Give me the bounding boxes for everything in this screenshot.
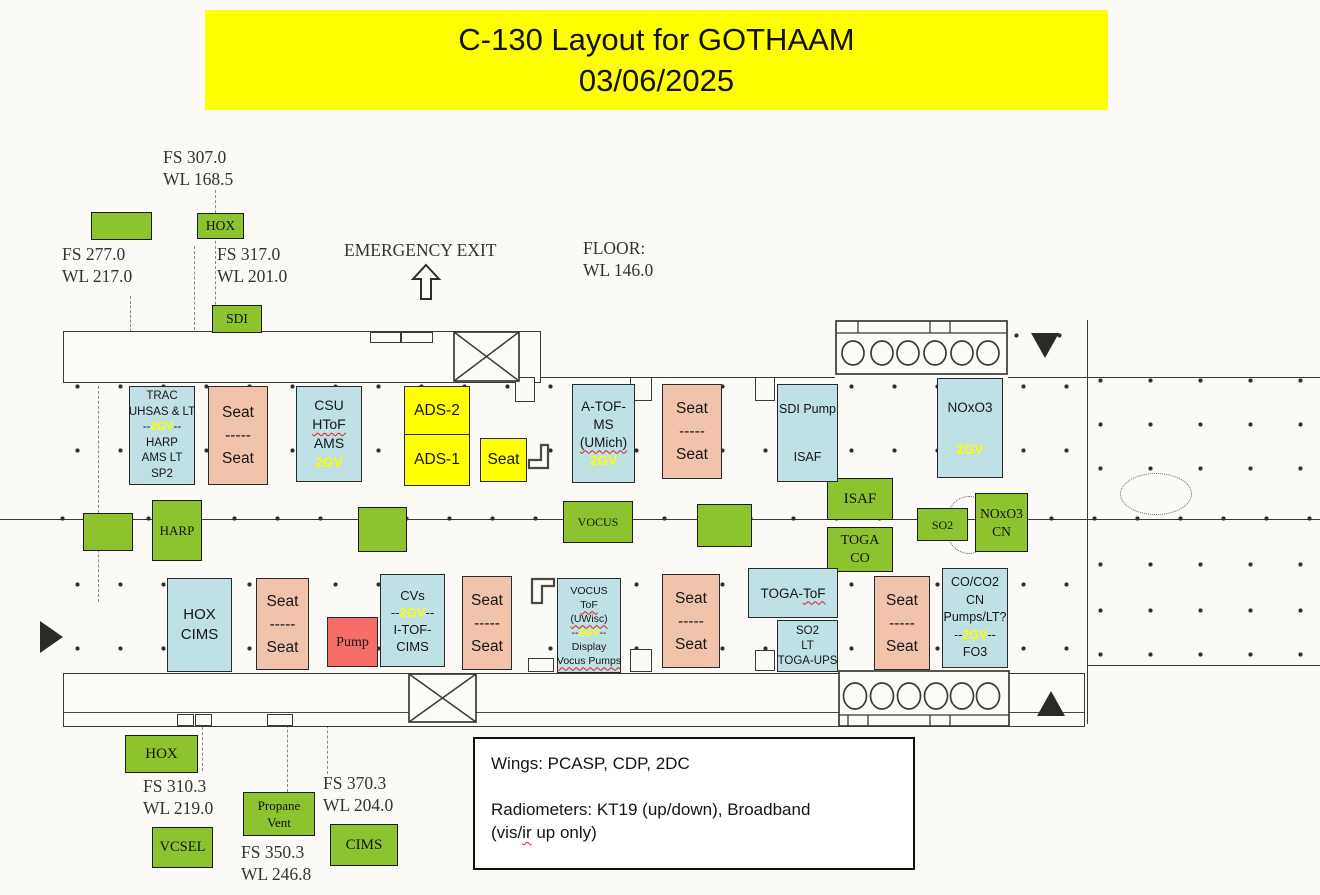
- crew-seat-row-top: [835, 320, 1008, 375]
- wall-panel: [195, 714, 212, 726]
- fs-307-label: FS 307.0WL 168.5: [163, 146, 233, 190]
- label-segment: Seat: [488, 451, 520, 468]
- c130-layout-screenshot: { "title": {"line1": "C-130 Layout for G…: [0, 0, 1320, 895]
- hox-top-box: HOX: [197, 213, 244, 239]
- label-segment: -----: [679, 423, 705, 440]
- top-wall-line: [1008, 377, 1088, 378]
- label-segment: -----: [889, 615, 915, 632]
- label-segment: Seat: [886, 638, 918, 655]
- label-segment: NOxO3: [947, 400, 992, 415]
- fs-310-label: FS 310.3WL 219.0: [143, 775, 213, 819]
- label-segment: Wings: PCASP, CDP, 2DC: [491, 754, 690, 773]
- seat-rack-3: Seat-----Seat: [256, 578, 309, 670]
- seat-track-dots: [1098, 562, 1316, 567]
- floor-label: FLOOR:WL 146.0: [583, 237, 653, 281]
- label-segment: 2GV: [315, 454, 343, 470]
- label-segment: ToF: [803, 586, 826, 601]
- a-tof-ms-rack: A-TOF-MS(UMich)2GV: [572, 384, 635, 483]
- label-segment: Seat: [676, 400, 708, 417]
- hox-cims-rack: HOXCIMS: [167, 578, 232, 672]
- green-box-unlabeled-mid-right: [697, 504, 752, 547]
- isaf-box: ISAF: [827, 478, 893, 520]
- dashed-line: [194, 246, 195, 330]
- label-segment: TOGA-UPS: [778, 655, 838, 667]
- label-segment: LT: [801, 640, 814, 652]
- label-segment: FO3: [963, 645, 987, 659]
- label-segment: 2GV: [150, 421, 173, 433]
- seat-track-dots: [60, 516, 1315, 521]
- label-segment: CVs: [400, 588, 425, 603]
- label-segment: -----: [678, 613, 704, 630]
- label-segment: AMS LT: [142, 452, 183, 464]
- label-segment: --: [426, 605, 435, 620]
- triangle-right-marker: [40, 621, 64, 653]
- noxo3-rack: NOxO3 2GV: [937, 378, 1003, 478]
- ads-1-box: ADS-1: [404, 434, 470, 486]
- fs-277-label: FS 277.0WL 217.0: [62, 243, 132, 287]
- label-segment: Pumps/LT?: [944, 610, 1007, 624]
- dashed-line: [98, 386, 99, 602]
- label-segment: Seat: [267, 639, 299, 656]
- seat-track-dots: [1098, 378, 1316, 383]
- top-wall-line: [541, 377, 835, 378]
- label-segment: SDI Pump: [779, 402, 836, 416]
- label-segment: ADS-2: [414, 402, 460, 419]
- label-segment: CN: [966, 593, 984, 607]
- label-segment: ADS-1: [414, 451, 460, 468]
- label-segment: CO/CO2: [951, 575, 999, 589]
- toga-tof-rack: TOGA-ToF: [748, 568, 838, 618]
- tail-oval-marking: [1120, 473, 1192, 515]
- wings-radiometers-note: Wings: PCASP, CDP, 2DC Radiometers: KT19…: [473, 737, 915, 870]
- label-segment: ToF: [580, 599, 598, 611]
- title-line-1: C-130 Layout for GOTHAAM: [458, 19, 854, 60]
- seat-track-dots: [1098, 422, 1316, 427]
- dashed-line: [130, 296, 131, 332]
- vocus-tof-rack: VOCUSToF(UWisc)--2GV--DisplayVocus Pumps: [557, 578, 621, 673]
- label-segment: HOX: [183, 606, 216, 623]
- label-segment: AMS: [314, 435, 344, 451]
- wall-clip: [630, 649, 652, 672]
- label-segment: (UMich): [580, 435, 627, 450]
- tail-bottom-line: [1087, 665, 1320, 666]
- dashed-line: [202, 727, 203, 771]
- wall-panel: [401, 332, 433, 343]
- label-segment: Radiometers: KT19 (up/down), Broadband: [491, 800, 810, 819]
- label-segment: 2GV: [962, 628, 987, 642]
- label-segment: TOGA-: [760, 586, 803, 601]
- label-segment: SO2: [796, 625, 819, 637]
- wall-panel: [267, 714, 293, 726]
- label-segment: CSU: [314, 397, 344, 413]
- triangle-up-marker: [1037, 691, 1065, 716]
- label-segment: 2GV: [590, 453, 617, 468]
- seat-rack-1: Seat-----Seat: [208, 386, 268, 485]
- triangle-down-marker: [1031, 333, 1059, 358]
- seat-rack-4: Seat-----Seat: [462, 576, 512, 670]
- label-segment: UHSAS & LT: [129, 406, 195, 418]
- label-segment: Seat: [222, 450, 254, 467]
- label-segment: HARP: [146, 437, 178, 449]
- label-segment: Seat: [471, 592, 503, 609]
- label-segment: up only): [532, 823, 597, 842]
- label-segment: Vocus Pumps: [557, 655, 621, 667]
- harp-box: HARP: [152, 500, 202, 561]
- emergency-exit-label: EMERGENCY EXIT: [344, 239, 496, 261]
- crew-seat-row-bottom: [838, 670, 1010, 727]
- so2-lt-toga-ups-rack: SO2LTTOGA-UPS: [777, 620, 838, 672]
- seat-yellow-box: Seat: [480, 438, 527, 482]
- label-segment: A-TOF-: [581, 399, 626, 414]
- pump-box: Pump: [327, 617, 378, 667]
- wall-clip: [755, 650, 775, 671]
- label-segment: Seat: [676, 446, 708, 463]
- label-segment: -----: [474, 615, 500, 632]
- label-segment: (UWisc): [570, 613, 607, 625]
- label-segment: TRAC: [146, 390, 177, 402]
- label-segment: (vis/: [491, 823, 522, 842]
- wall-panel: [370, 332, 401, 343]
- seat-rack-6: Seat-----Seat: [874, 576, 930, 670]
- label-segment: -----: [270, 616, 296, 633]
- ads-2-box: ADS-2: [404, 386, 470, 435]
- co-co2-rack: CO/CO2CNPumps/LT?--2GV--FO3: [942, 568, 1008, 668]
- noxo3-cn-box: NOxO3CN: [975, 493, 1028, 552]
- csu-htof-ams-rack: CSUHToFAMS2GV: [296, 386, 362, 482]
- trac-uhsas-rack: TRACUHSAS & LT--2GV--HARPAMS LTSP2: [129, 386, 195, 485]
- wall-clip: [755, 377, 775, 401]
- tail-bulkhead-line: [1087, 320, 1088, 724]
- label-segment: VOCUS: [570, 585, 607, 597]
- seat-track-dots: [1098, 652, 1316, 657]
- label-segment: I-TOF-: [393, 622, 431, 637]
- wall-clip: [528, 658, 554, 672]
- label-segment: ir: [522, 823, 531, 842]
- seat-track-dots: [1098, 608, 1316, 613]
- label-segment: -----: [225, 427, 251, 444]
- so2-box: SO2: [917, 508, 968, 541]
- label-segment: Seat: [471, 638, 503, 655]
- label-segment: Seat: [675, 636, 707, 653]
- label-segment: 2GV: [399, 605, 425, 620]
- emergency-exit-arrow-icon: [412, 264, 440, 300]
- label-segment: Pump: [336, 635, 369, 650]
- seat-bracket: [527, 443, 551, 471]
- seat-rack-5: Seat-----Seat: [662, 574, 720, 668]
- seat-bracket: [530, 577, 556, 605]
- fs-350-label: FS 350.3WL 246.8: [241, 841, 311, 885]
- label-segment: Seat: [267, 593, 299, 610]
- label-segment: --: [988, 628, 996, 642]
- crossed-hatch-top: [453, 331, 520, 382]
- wall-panel: [177, 714, 194, 726]
- cvs-itof-cims-rack: CVs--2GV--I-TOF-CIMS: [380, 574, 445, 667]
- hox-bottom-box: HOX: [125, 735, 198, 773]
- fs-370-label: FS 370.3WL 204.0: [323, 772, 393, 816]
- green-box-unlabeled-mid-left: [83, 513, 133, 551]
- label-segment: Seat: [886, 592, 918, 609]
- green-box-unlabeled-mid-center: [358, 507, 407, 552]
- crossed-hatch-bottom: [408, 673, 477, 723]
- label-segment: ISAF: [794, 450, 822, 464]
- label-segment: CIMS: [396, 639, 429, 654]
- label-segment: 2GV: [956, 442, 983, 457]
- seat-track-dots: [1098, 466, 1316, 471]
- vcsel-box: VCSEL: [152, 827, 213, 868]
- propane-vent-box: PropaneVent: [243, 792, 315, 836]
- label-segment: --: [600, 627, 607, 639]
- green-box-unlabeled-top: [91, 212, 152, 240]
- label-segment: --: [174, 421, 182, 433]
- cims-box: CIMS: [330, 824, 398, 866]
- vocus-box: VOCUS: [563, 501, 633, 543]
- label-segment: 2GV: [578, 627, 599, 639]
- sdi-pump-isaf-rack: SDI Pump ISAF: [777, 384, 838, 482]
- label-segment: HToF: [312, 416, 345, 432]
- label-segment: SP2: [151, 468, 173, 480]
- label-segment: Seat: [222, 404, 254, 421]
- sdi-box: SDI: [212, 305, 262, 333]
- fs-317-label: FS 317.0WL 201.0: [217, 243, 287, 287]
- toga-co-box: TOGACO: [827, 527, 893, 572]
- label-segment: Display: [572, 641, 606, 653]
- title-banner: C-130 Layout for GOTHAAM 03/06/2025: [205, 10, 1108, 110]
- seat-rack-2: Seat-----Seat: [662, 384, 722, 479]
- label-segment: Seat: [675, 590, 707, 607]
- label-segment: MS: [593, 417, 613, 432]
- title-line-2: 03/06/2025: [579, 60, 734, 101]
- label-segment: CIMS: [181, 626, 219, 643]
